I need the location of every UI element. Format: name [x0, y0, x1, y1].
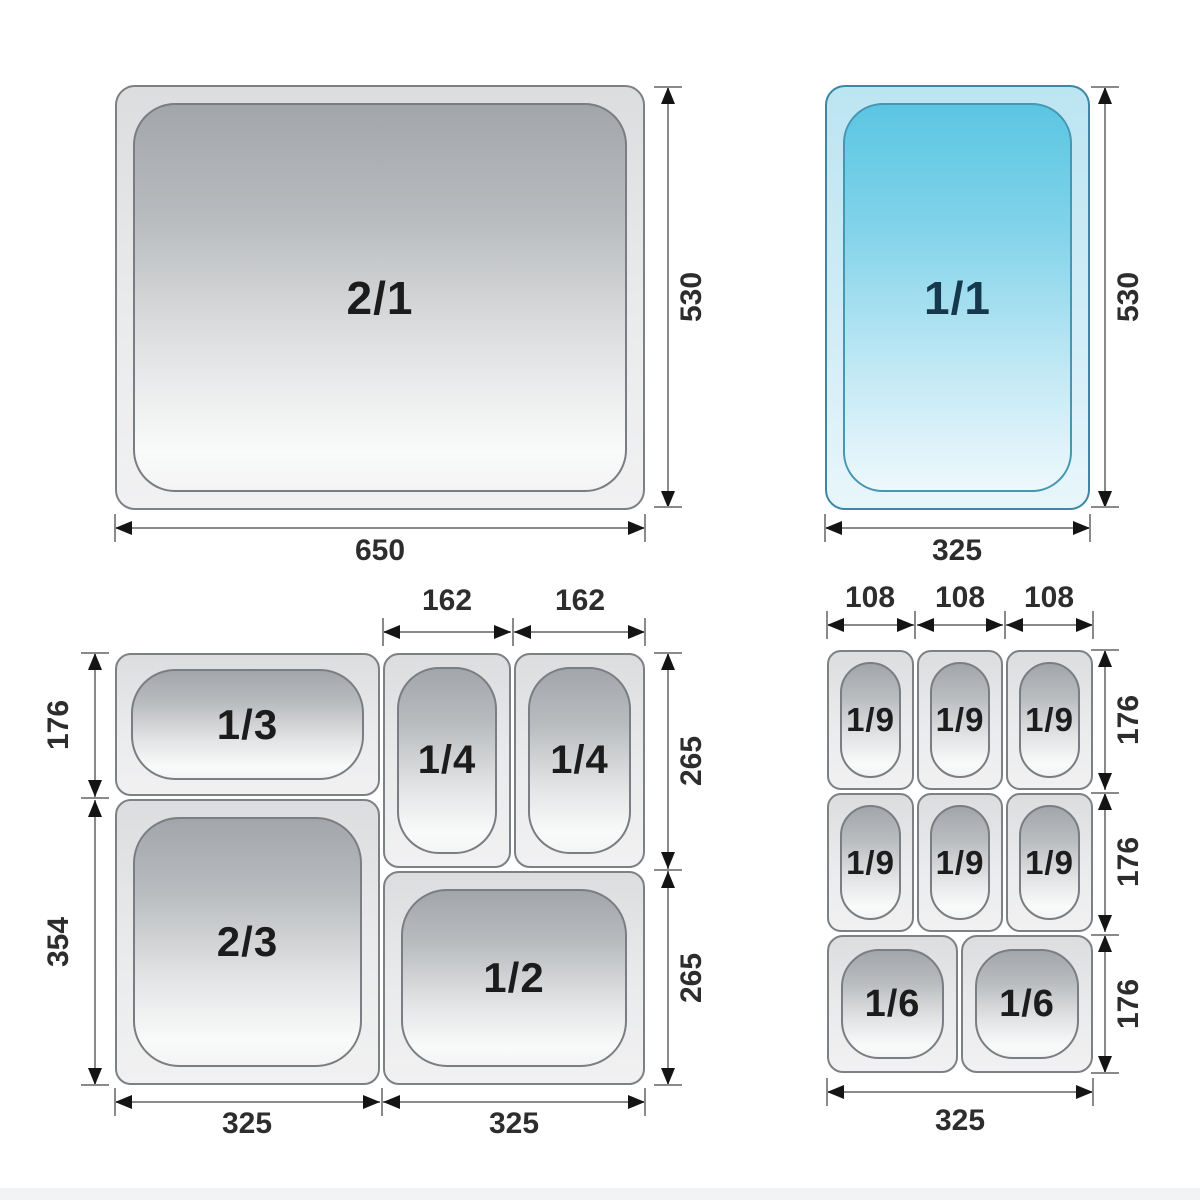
- extension-tick: [654, 506, 682, 508]
- arrowhead-down: [661, 852, 675, 869]
- extension-tick: [1091, 649, 1119, 651]
- extension-tick: [382, 618, 384, 646]
- arrowhead-up: [1098, 793, 1112, 810]
- pan-1-3-label: 1/3: [117, 655, 378, 794]
- dimension-line: [827, 1091, 1093, 1093]
- extension-tick: [826, 1078, 828, 1106]
- pan-1-6-label: 1/6: [963, 937, 1091, 1071]
- pan-1-1: 1/1: [825, 85, 1090, 510]
- dim-arrow-2-1-width: [115, 521, 645, 535]
- arrowhead-down: [88, 1068, 102, 1085]
- dim-arrow-ninth-width-3: [1006, 618, 1093, 632]
- dim-arrow-quarter-a-width: [383, 625, 511, 639]
- dimension-line: [115, 1101, 380, 1103]
- extension-tick: [1092, 611, 1094, 639]
- arrowhead-up: [661, 871, 675, 888]
- dim-label-325-left-a: 325: [202, 1107, 292, 1141]
- pan-2-1-label: 2/1: [117, 87, 643, 508]
- arrowhead-up: [1098, 935, 1112, 952]
- dim-label-265-a: 265: [675, 716, 709, 806]
- dim-arrow-two-thirds-height: [88, 800, 102, 1085]
- pan-1-9-r1c3: 1/9: [1006, 650, 1093, 790]
- arrowhead-right: [1076, 618, 1093, 632]
- dim-label-176-right-c: 176: [1112, 959, 1146, 1049]
- dim-arrow-third-height: [88, 653, 102, 797]
- pan-1-4-b-label: 1/4: [516, 655, 643, 866]
- extension-tick: [644, 514, 646, 542]
- extension-tick: [1091, 506, 1119, 508]
- dim-arrow-1-1-height: [1098, 87, 1112, 508]
- extension-tick: [914, 611, 916, 639]
- dimension-line: [1104, 793, 1106, 932]
- extension-tick: [1004, 611, 1006, 639]
- dim-label-162-a: 162: [402, 584, 492, 618]
- dimension-line: [667, 87, 669, 508]
- extension-tick: [81, 652, 109, 654]
- arrowhead-up: [88, 653, 102, 670]
- arrowhead-right: [1073, 521, 1090, 535]
- dimension-line: [825, 527, 1090, 529]
- arrowhead-left: [115, 521, 132, 535]
- extension-tick: [1091, 934, 1119, 936]
- arrowhead-right: [628, 1095, 645, 1109]
- extension-tick: [1092, 1078, 1094, 1106]
- extension-tick: [114, 1088, 116, 1116]
- pan-1-9-r2c2: 1/9: [917, 793, 1003, 932]
- dimension-line: [667, 871, 669, 1085]
- arrowhead-left: [827, 618, 844, 632]
- dim-arrow-ninth-height-2: [1098, 793, 1112, 932]
- arrowhead-up: [661, 653, 675, 670]
- extension-tick: [381, 1088, 383, 1116]
- pan-1-9-r1c2: 1/9: [917, 650, 1003, 790]
- extension-tick: [1091, 792, 1119, 794]
- pan-1-9-label: 1/9: [829, 795, 912, 930]
- pan-2-1: 2/1: [115, 85, 645, 510]
- arrowhead-up: [1098, 650, 1112, 667]
- dimension-line: [667, 653, 669, 869]
- extension-tick: [654, 86, 682, 88]
- arrowhead-down: [1098, 1056, 1112, 1073]
- dim-label-108-a: 108: [825, 581, 915, 615]
- dim-label-108-c: 108: [1004, 581, 1094, 615]
- extension-tick: [512, 618, 514, 646]
- pan-1-9-label: 1/9: [1008, 652, 1091, 788]
- arrowhead-left: [514, 625, 531, 639]
- dim-arrow-ninth-height-1: [1098, 650, 1112, 790]
- pan-1-9-r2c3: 1/9: [1006, 793, 1093, 932]
- extension-tick: [824, 514, 826, 542]
- dim-label-325-left-b: 325: [469, 1107, 559, 1141]
- pan-1-4-b: 1/4: [514, 653, 645, 868]
- extension-tick: [826, 611, 828, 639]
- dim-label-176-right-b: 176: [1112, 817, 1146, 907]
- extension-tick: [654, 869, 682, 871]
- pan-1-1-label: 1/1: [827, 87, 1088, 508]
- extension-tick: [644, 618, 646, 646]
- arrowhead-right: [628, 625, 645, 639]
- arrowhead-down: [1098, 773, 1112, 790]
- extension-tick: [81, 1084, 109, 1086]
- pan-1-4-a-label: 1/4: [385, 655, 509, 866]
- arrowhead-right: [986, 618, 1003, 632]
- arrowhead-up: [1098, 87, 1112, 104]
- dim-label-108-b: 108: [915, 581, 1005, 615]
- dim-label-265-b: 265: [675, 933, 709, 1023]
- dim-arrow-2-1-height: [661, 87, 675, 508]
- pan-1-3: 1/3: [115, 653, 380, 796]
- extension-tick: [1089, 514, 1091, 542]
- extension-tick: [654, 652, 682, 654]
- extension-tick: [1091, 1072, 1119, 1074]
- arrowhead-up: [88, 800, 102, 817]
- arrowhead-right: [897, 618, 914, 632]
- dim-label-162-b: 162: [535, 584, 625, 618]
- arrowhead-right: [494, 625, 511, 639]
- pan-1-9-label: 1/9: [829, 652, 912, 788]
- dim-label-2-1-width: 650: [335, 534, 425, 568]
- dimension-line: [1104, 650, 1106, 790]
- arrowhead-up: [661, 87, 675, 104]
- dim-label-176-left: 176: [42, 680, 76, 770]
- dim-arrow-ninth-width-1: [827, 618, 914, 632]
- arrowhead-right: [628, 521, 645, 535]
- dim-arrow-ninth-width-2: [917, 618, 1003, 632]
- pan-1-9-r2c1: 1/9: [827, 793, 914, 932]
- extension-tick: [1091, 86, 1119, 88]
- dimension-line: [514, 631, 645, 633]
- dimension-line: [94, 653, 96, 797]
- arrowhead-left: [115, 1095, 132, 1109]
- pan-1-9-r1c1: 1/9: [827, 650, 914, 790]
- pan-1-9-label: 1/9: [1008, 795, 1091, 930]
- arrowhead-left: [917, 618, 934, 632]
- arrowhead-right: [1076, 1085, 1093, 1099]
- pan-1-6-label: 1/6: [829, 937, 956, 1071]
- dim-label-325-right: 325: [915, 1104, 1005, 1138]
- dim-label-2-1-height: 530: [675, 252, 709, 342]
- pan-1-6-a: 1/6: [827, 935, 958, 1073]
- dim-label-176-right-a: 176: [1112, 675, 1146, 765]
- extension-tick: [644, 1088, 646, 1116]
- arrowhead-left: [825, 521, 842, 535]
- pan-1-2: 1/2: [383, 871, 645, 1085]
- arrowhead-left: [383, 1095, 400, 1109]
- pan-1-9-label: 1/9: [919, 652, 1001, 788]
- dim-arrow-combo-right-width: [827, 1085, 1093, 1099]
- pan-1-2-label: 1/2: [385, 873, 643, 1083]
- footer-strip: [0, 1188, 1200, 1200]
- arrowhead-left: [827, 1085, 844, 1099]
- dim-arrow-sixth-height: [1098, 935, 1112, 1073]
- extension-tick: [81, 797, 109, 799]
- extension-tick: [114, 514, 116, 542]
- dimension-line: [1104, 87, 1106, 508]
- dimension-line: [383, 631, 511, 633]
- dimension-line: [1104, 935, 1106, 1073]
- arrowhead-down: [1098, 915, 1112, 932]
- dim-label-1-1-height: 530: [1112, 252, 1146, 342]
- extension-tick: [654, 1084, 682, 1086]
- dim-label-354-left: 354: [42, 897, 76, 987]
- arrowhead-left: [1006, 618, 1023, 632]
- arrowhead-down: [88, 780, 102, 797]
- dim-arrow-quarter-height: [661, 653, 675, 869]
- pan-1-9-label: 1/9: [919, 795, 1001, 930]
- arrowhead-down: [661, 1068, 675, 1085]
- pan-2-3: 2/3: [115, 799, 380, 1085]
- dim-arrow-half-height: [661, 871, 675, 1085]
- arrowhead-left: [383, 625, 400, 639]
- pan-2-3-label: 2/3: [117, 801, 378, 1083]
- dim-label-1-1-width: 325: [912, 534, 1002, 568]
- dim-arrow-quarter-b-width: [514, 625, 645, 639]
- dimension-line: [94, 800, 96, 1085]
- pan-1-4-a: 1/4: [383, 653, 511, 868]
- dimension-line: [115, 527, 645, 529]
- arrowhead-right: [363, 1095, 380, 1109]
- pan-1-6-b: 1/6: [961, 935, 1093, 1073]
- dimension-line: [383, 1101, 645, 1103]
- dim-arrow-1-1-width: [825, 521, 1090, 535]
